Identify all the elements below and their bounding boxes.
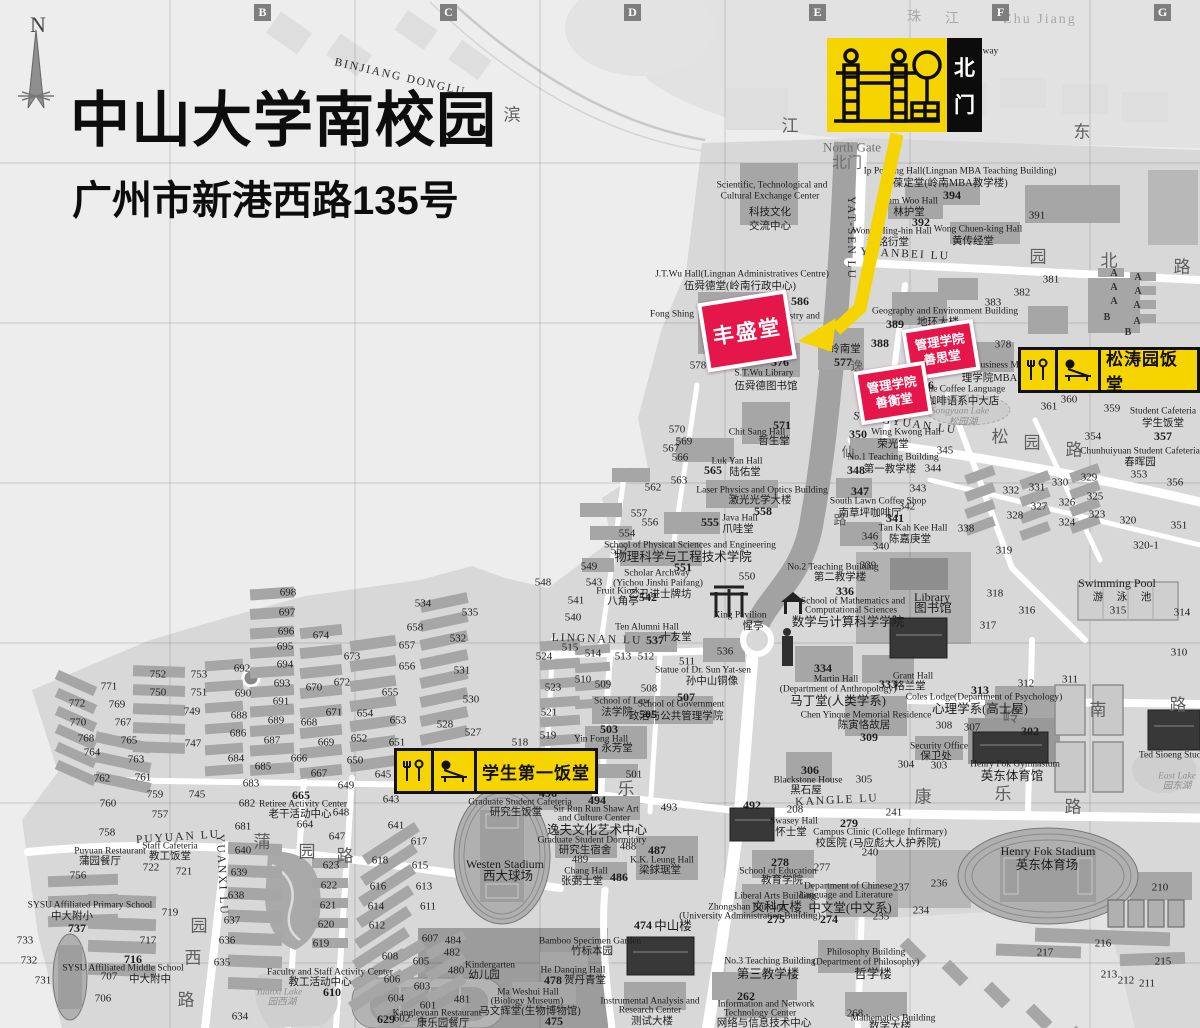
north-gate-callout[interactable]: 北 门: [827, 38, 982, 132]
rest-icon: [1055, 350, 1098, 390]
rest-icon: [431, 751, 474, 791]
grid-letter-G: G: [1154, 4, 1171, 21]
songtao-cafeteria-callout[interactable]: 松涛园饭堂: [1018, 347, 1200, 393]
grid-letter-C: C: [440, 4, 457, 21]
fengsheng-hall-label: 丰盛堂: [711, 311, 784, 351]
utensils-icon: [397, 751, 431, 791]
page-subtitle: 广州市新港西路135号: [72, 168, 459, 226]
fengsheng-hall-callout[interactable]: 丰盛堂: [697, 289, 797, 372]
student-no1-cafeteria-callout[interactable]: 学生第一饭堂: [394, 748, 598, 794]
utensils-icon: [1021, 350, 1055, 390]
grid-letter-D: D: [624, 4, 641, 21]
campus-map: BINJIANG DONGLU滨江东珠江Zhu JianghwayNorth G…: [0, 0, 1200, 1028]
gate-icon: [827, 38, 947, 132]
compass-north-label: N: [30, 12, 46, 38]
grid-letter-F: F: [992, 4, 1009, 21]
student-no1-cafeteria-label: 学生第一饭堂: [474, 751, 595, 791]
north-gate-label: 北 门: [947, 38, 982, 132]
grid-letter-E: E: [809, 4, 826, 21]
grid-letter-B: B: [254, 4, 271, 21]
page-title: 中山大学南校园: [70, 72, 497, 159]
shanheng-hall-callout[interactable]: 管理学院 善衡堂: [853, 361, 933, 426]
songtao-cafeteria-label: 松涛园饭堂: [1098, 350, 1197, 390]
